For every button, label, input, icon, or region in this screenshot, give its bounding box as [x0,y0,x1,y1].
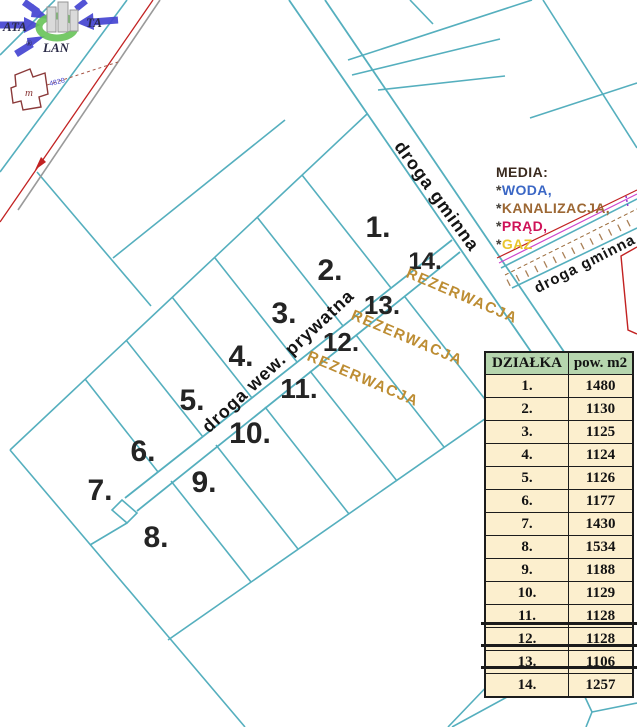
parcel-area: 1480 [569,375,634,398]
parcel-area: 1188 [569,559,634,582]
table-row: 3.1125 [485,421,633,444]
parcel-no: 12. [485,628,569,651]
parcel-label-1: 1. [365,213,390,243]
parcel-area: 1128 [569,628,634,651]
logo-text-bottom: LAN [42,40,70,55]
media-item-label: KANALIZACJA, [502,200,610,216]
parcel-label-4: 4. [228,342,253,372]
parcel-area: 1106 [569,651,634,674]
table-row: 1.1480 [485,375,633,398]
parcel-area: 1430 [569,513,634,536]
media-item-label: GAZ [502,236,533,252]
parcel-label-2: 2. [317,256,342,286]
parcel-area: 1177 [569,490,634,513]
parcel-label-3: 3. [271,299,296,329]
parcel-no: 5. [485,467,569,490]
media-item-label: PRĄD, [502,218,548,234]
parcel-label-10: 10. [229,419,271,449]
parcel-no: 9. [485,559,569,582]
media-legend-title: MEDIA: [496,163,610,181]
parcel-area: 1534 [569,536,634,559]
parcel-no: 7. [485,513,569,536]
strikethrough-row-13 [481,644,637,647]
table-row: 10.1129 [485,582,633,605]
parcel-no: 3. [485,421,569,444]
table-row-struck: 12.1128 [485,628,633,651]
parcel-label-8: 8. [143,523,168,553]
table-row-struck: 14.1257 [485,674,633,698]
media-legend-item-prad: *PRĄD, [496,217,610,235]
media-legend-item-gaz: *GAZ [496,235,610,253]
parcel-no: 1. [485,375,569,398]
parcel-label-11: 11. [280,375,317,403]
parcel-no: 10. [485,582,569,605]
table-row: 6.1177 [485,490,633,513]
parcel-no: 14. [485,674,569,698]
parcel-area: 1125 [569,421,634,444]
strikethrough-row-12 [481,622,637,625]
parcel-no: 6. [485,490,569,513]
table-header-pow: pow. m2 [569,352,634,375]
building-m-label: m [25,87,33,99]
parcel-label-7: 7. [87,476,112,506]
parcel-area: 1130 [569,398,634,421]
logo-registered-mark: ® [26,39,32,48]
parcel-label-5: 5. [179,386,204,416]
parcel-area: 1257 [569,674,634,698]
parcel-plan-map: m 4828 [0,0,637,727]
parcel-label-9: 9. [191,468,216,498]
strikethrough-row-14 [481,666,637,669]
media-legend-item-woda: *WODA, [496,181,610,199]
parcel-no: 4. [485,444,569,467]
media-legend: MEDIA: *WODA, *KANALIZACJA, *PRĄD, *GAZ [496,163,610,253]
parcel-area: 1124 [569,444,634,467]
parcel-no: 13. [485,651,569,674]
table-header-row: DZIAŁKA pow. m2 [485,352,633,375]
table-row: 7.1430 [485,513,633,536]
logo-buildings-icon [47,2,78,32]
logo-text-right: TA [86,15,102,30]
parcel-area: 1126 [569,467,634,490]
parcel-no: 8. [485,536,569,559]
table-header-dzialka: DZIAŁKA [485,352,569,375]
parcel-area: 1129 [569,582,634,605]
ata-plan-logo: ATA TA LAN ® [0,1,118,55]
parcel-label-12: 12. [323,329,359,355]
media-legend-item-kanalizacja: *KANALIZACJA, [496,199,610,217]
parcel-label-6: 6. [130,437,155,467]
table-row-struck: 13.1106 [485,651,633,674]
table-row: 9.1188 [485,559,633,582]
parcel-no: 2. [485,398,569,421]
media-item-label: WODA, [502,182,552,198]
table-row: 8.1534 [485,536,633,559]
table-row: 2.1130 [485,398,633,421]
table-row: 5.1126 [485,467,633,490]
table-row: 4.1124 [485,444,633,467]
logo-text-left: ATA [2,19,27,34]
